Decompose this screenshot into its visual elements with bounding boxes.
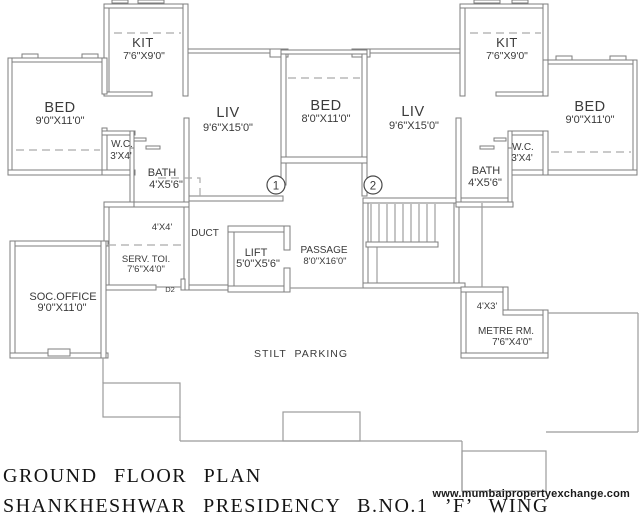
liv-left-dims: 9'6"X15'0" xyxy=(203,122,253,134)
kit-right-dims: 7'6"X9'0" xyxy=(486,50,528,62)
room-label-wc-right: W.C. 3'X4' xyxy=(511,142,534,164)
room-label-bed-left: BED 9'0"X11'0" xyxy=(35,100,84,127)
watermark-url: www.mumbaipropertyexchange.com xyxy=(431,488,630,500)
kit-left-name: KIT xyxy=(132,35,154,50)
room-label-soc-office: SOC.OFFICE 9'0"X11'0" xyxy=(29,291,96,314)
room-label-bath-right: BATH 4'X5'6" xyxy=(468,165,502,189)
bed-right-dims: 9'0"X11'0" xyxy=(565,114,614,126)
wc-right-name: W.C. xyxy=(512,142,534,153)
kit-left-dims: 7'6"X9'0" xyxy=(123,50,165,62)
bed-left-dims: 9'0"X11'0" xyxy=(35,115,84,127)
duct-name: DUCT xyxy=(191,228,219,239)
metre-rm-name: METRE RM. xyxy=(478,326,534,337)
room-label-liv-left: LIV 9'6"X15'0" xyxy=(203,105,253,134)
plan-title: GROUND FLOOR PLAN xyxy=(3,465,262,487)
room-label-kit-right: KIT 7'6"X9'0" xyxy=(486,35,528,62)
room-label-liv-right: LIV 9'6"X15'0" xyxy=(389,104,439,132)
room-label-wc-left: W.C. 3'X4' xyxy=(110,139,133,162)
store-4x4-dims: 4'X4' xyxy=(152,222,173,233)
bed-right-name: BED xyxy=(574,99,605,115)
stilt-parking-label: STILT PARKING xyxy=(254,348,348,360)
soc-office-dims: 9'0"X11'0" xyxy=(37,302,86,314)
metre-rm-dims: 7'6"X4'0" xyxy=(492,337,532,348)
ref-number-1: 1 xyxy=(273,181,279,193)
bed-left-name: BED xyxy=(44,100,75,116)
wc-left-dims: 3'X4' xyxy=(110,151,132,162)
room-label-metre-rm: METRE RM. 7'6"X4'0" xyxy=(478,326,534,348)
floor-plan-page: KIT 7'6"X9'0" BED 9'0"X11'0" LIV 9'6"X15… xyxy=(0,0,640,515)
room-label-bath-left: BATH 4'X5'6" xyxy=(148,167,183,191)
bath-right-name: BATH xyxy=(472,165,501,177)
room-label-lift: LIFT 5'0"X5'6" xyxy=(236,247,280,270)
passage-name: PASSAGE xyxy=(300,245,347,256)
room-label-kit-left: KIT 7'6"X9'0" xyxy=(123,35,165,62)
bath-right-dims: 4'X5'6" xyxy=(468,177,502,189)
lift-dims: 5'0"X5'6" xyxy=(236,258,280,270)
door-label-d2: D2 xyxy=(165,285,175,294)
wc-right-dims: 3'X4' xyxy=(511,153,533,164)
room-label-bed-center: BED 8'0"X11'0" xyxy=(301,98,350,125)
room-label-passage: PASSAGE 8'0"X16'0" xyxy=(300,245,347,267)
bath-left-dims: 4'X5'6" xyxy=(149,179,183,191)
wc-left-name: W.C. xyxy=(111,139,133,150)
liv-left-name: LIV xyxy=(216,105,239,121)
serv-toi-dims: 7'6"X4'0" xyxy=(127,264,165,275)
floor-plan-drawing: KIT 7'6"X9'0" BED 9'0"X11'0" LIV 9'6"X15… xyxy=(0,0,640,515)
bed-center-name: BED xyxy=(310,98,341,114)
room-label-serv-toi: SERV. TOI. 7'6"X4'0" xyxy=(122,254,170,275)
liv-right-name: LIV xyxy=(401,104,424,120)
bath-left-name: BATH xyxy=(148,167,177,179)
bed-center-dims: 8'0"X11'0" xyxy=(301,113,350,125)
walls xyxy=(8,0,637,358)
liv-right-dims: 9'6"X15'0" xyxy=(389,120,439,132)
passage-dims: 8'0"X16'0" xyxy=(303,256,346,267)
kit-right-name: KIT xyxy=(496,35,518,50)
room-label-bed-right: BED 9'0"X11'0" xyxy=(565,99,614,126)
meter-4x3-dims: 4'X3' xyxy=(477,301,498,312)
ref-number-2: 2 xyxy=(370,181,376,193)
